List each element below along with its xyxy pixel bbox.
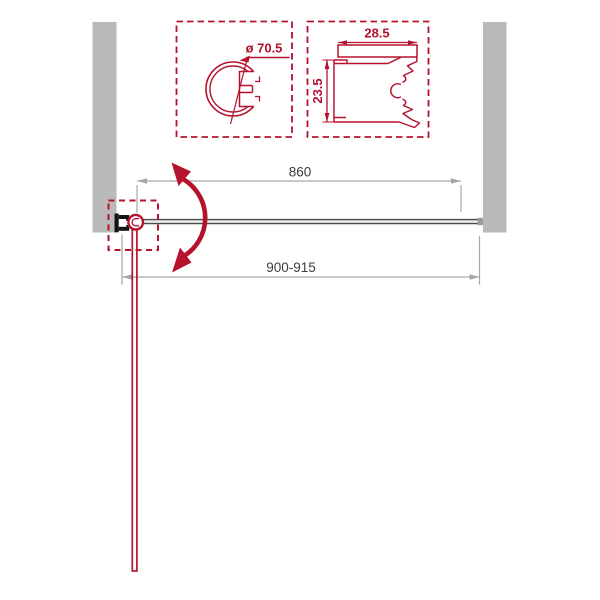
pivot-detail-callout-box <box>177 22 293 138</box>
glass-panel <box>142 218 483 225</box>
pivot-profile-detail-view: ø 70.5 <box>177 22 293 138</box>
width-arrow-left-icon <box>338 40 347 45</box>
wall-profile-height-label: 23.5 <box>310 78 325 103</box>
width-arrow-right-icon <box>408 40 417 45</box>
wall-profile-body-bottom <box>334 118 399 123</box>
wall-profile-foot-lip <box>399 120 420 128</box>
wall-profile-end-cap <box>478 218 484 225</box>
dim-arrow-right-icon <box>451 178 461 183</box>
swing-arc <box>183 179 205 256</box>
dim-arrow-left-icon <box>122 274 132 279</box>
wall-profile-width-label: 28.5 <box>364 26 389 41</box>
dim-arrow-right-icon <box>470 274 480 279</box>
hinge-pivot-knuckle <box>128 215 143 230</box>
wall-profile-screw-boss <box>391 84 401 98</box>
hinge-bracket-top-arm <box>119 215 130 219</box>
opening-width-value: 900-915 <box>266 260 316 275</box>
wall-profile-lower-teeth <box>403 99 413 120</box>
diameter-leader-arrow-icon <box>240 56 251 63</box>
drawing-canvas: ø 70.5 28.5 23.5 860 900-915 <box>0 0 600 600</box>
dimension-opening-width: 900-915 <box>122 235 480 285</box>
wall-profile-upper-teeth <box>403 57 417 82</box>
door-width-value: 860 <box>289 165 312 180</box>
wall-profile-detail-view: 28.5 23.5 <box>308 22 429 138</box>
pivot-profile-gap <box>236 71 265 107</box>
door-swing-arrow <box>172 163 206 273</box>
hinge-bracket-back <box>115 214 119 233</box>
open-door-outline <box>132 230 138 572</box>
height-arrow-top-icon <box>325 60 330 69</box>
wall-profile-top-flange <box>338 45 417 57</box>
right-wall <box>483 22 507 233</box>
technical-drawing-page: ø 70.5 28.5 23.5 860 900-915 <box>0 0 600 600</box>
dim-arrow-left-icon <box>137 178 147 183</box>
height-arrow-bottom-icon <box>325 113 330 122</box>
pivot-diameter-label: ø 70.5 <box>246 41 283 56</box>
glass-panel-fill <box>142 220 483 224</box>
hinge-bracket-bottom-arm <box>119 227 130 231</box>
hinge-pivot-inner-clamp <box>132 219 139 226</box>
